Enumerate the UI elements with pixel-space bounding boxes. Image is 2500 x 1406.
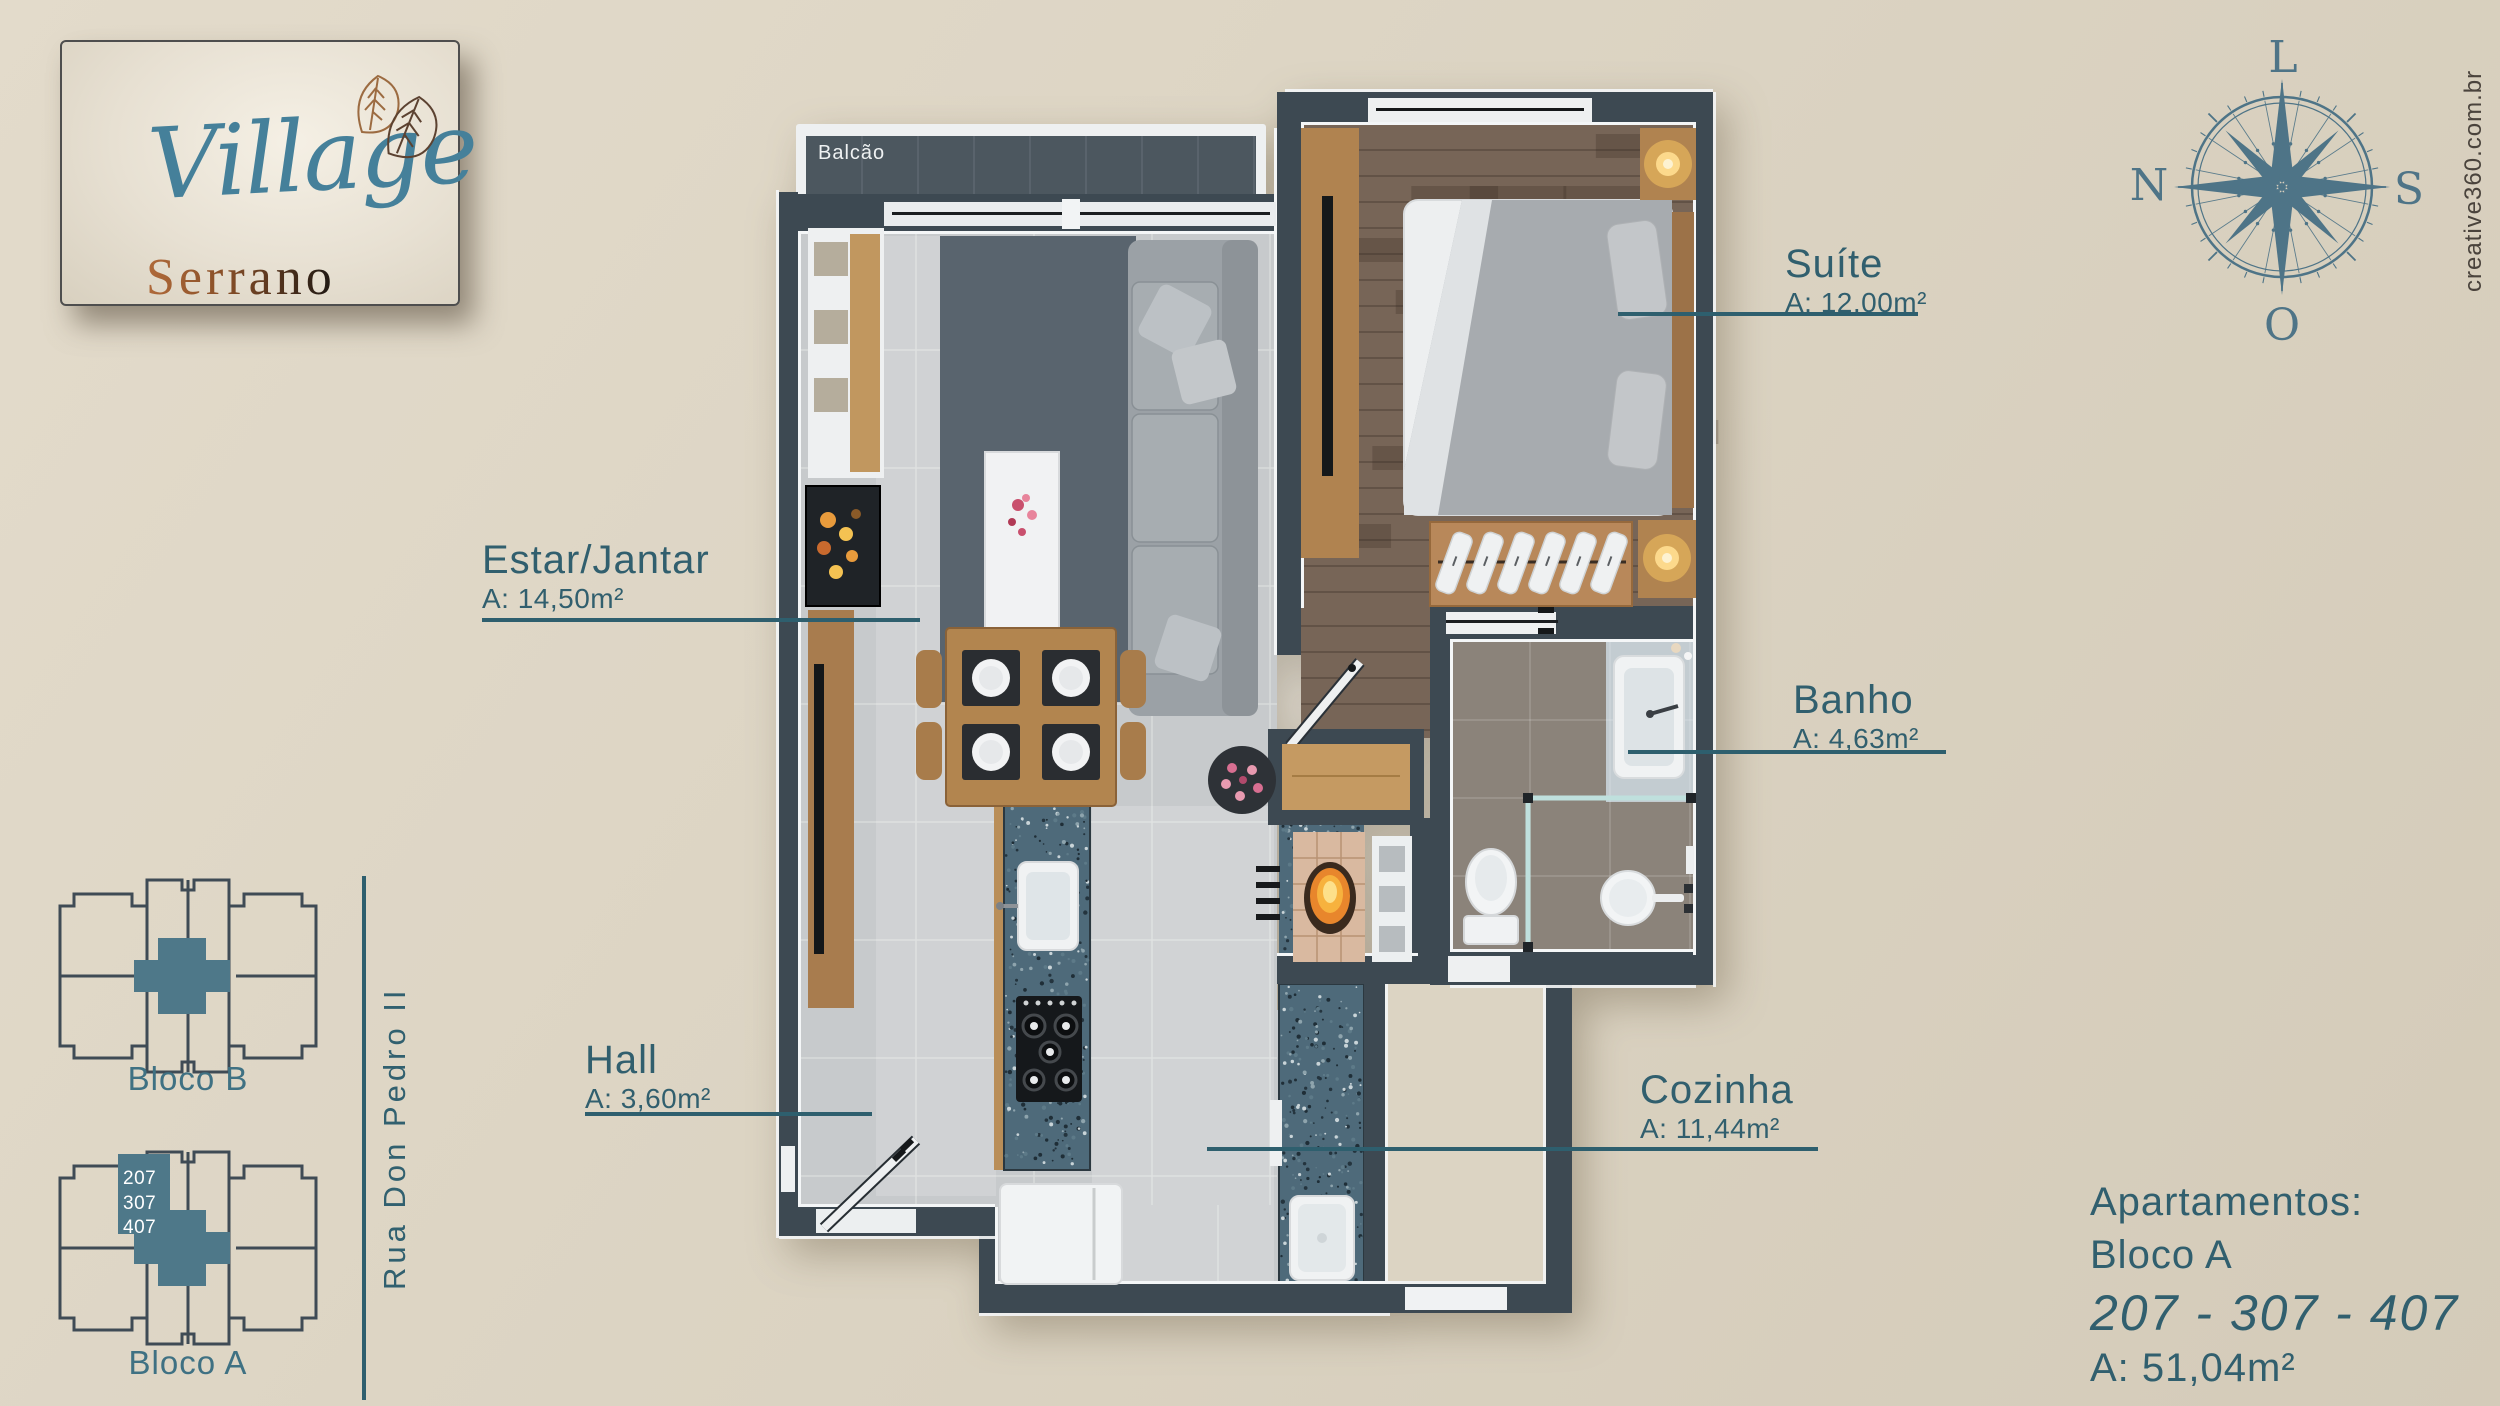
info-area: A: 51,04m²	[2090, 1346, 2459, 1391]
info-block: Bloco A	[2090, 1233, 2459, 1278]
room-area: A: 3,60m²	[585, 1083, 711, 1115]
compass-rose-icon	[2172, 77, 2392, 297]
bath-service-door	[1448, 956, 1510, 982]
room-area: A: 4,63m²	[1793, 723, 1919, 755]
info-title: Apartamentos:	[2090, 1180, 2459, 1225]
room-area: A: 11,44m²	[1640, 1113, 1794, 1145]
tv	[814, 664, 824, 954]
key-plan-bloco-b	[52, 876, 324, 1076]
service-entry-door	[1405, 1287, 1507, 1310]
headboard	[1672, 212, 1694, 508]
room-area: A: 12,00m²	[1785, 287, 1927, 319]
fridge	[1000, 1184, 1122, 1284]
key-plan-bloco-a	[52, 1148, 324, 1348]
chair	[1120, 722, 1146, 780]
room-label-kitchen: Cozinha A: 11,44m²	[1640, 1068, 1794, 1145]
logo-card: Village Serrano	[60, 40, 460, 306]
credit-watermark: creative360.com.br	[2452, 26, 2496, 336]
room-title: Suíte	[1785, 242, 1927, 287]
room-label-living: Estar/Jantar A: 14,50m²	[482, 538, 710, 615]
leaves-icon	[346, 66, 450, 166]
page: Balcão Suíte A: 12,00m² Estar/Jantar A: …	[0, 0, 2500, 1406]
apartment-info: Apartamentos: Bloco A 207 - 307 - 407 A:…	[2090, 1180, 2459, 1391]
room-title: Banho	[1793, 678, 1919, 723]
compass-north-label: N	[2124, 160, 2174, 210]
basin-faucet	[1652, 894, 1684, 902]
info-unit-numbers: 207 - 307 - 407	[2090, 1284, 2459, 1342]
street-name: Rua Don Pedro II	[372, 876, 418, 1400]
unit-numbers: 207 307 407	[123, 1167, 156, 1241]
logo-subname: Serrano	[146, 248, 336, 307]
bloco-a-label: Bloco A	[52, 1344, 324, 1382]
chair	[1120, 650, 1146, 708]
street-line	[362, 876, 366, 1400]
flower-box	[806, 486, 880, 606]
kitchen-leader-line	[1207, 1147, 1818, 1151]
shower-head	[1686, 846, 1694, 874]
room-label-hall: Hall A: 3,60m²	[585, 1038, 711, 1115]
room-title: Hall	[585, 1038, 711, 1083]
room-label-bath: Banho A: 4,63m²	[1793, 678, 1919, 755]
chair	[916, 722, 942, 780]
balcony-label: Balcão	[818, 142, 885, 165]
room-label-suite: Suíte A: 12,00m²	[1785, 242, 1927, 319]
living-leader-line	[482, 618, 920, 622]
room-title: Estar/Jantar	[482, 538, 710, 583]
compass-south-label: S	[2384, 164, 2434, 214]
bloco-b-label: Bloco B	[52, 1060, 324, 1098]
toilet-tank	[1464, 916, 1518, 944]
room-title: Cozinha	[1640, 1068, 1794, 1113]
room-area: A: 14,50m²	[482, 583, 710, 615]
compass-east-label: L	[2258, 32, 2308, 82]
compass-west-label: O	[2257, 300, 2307, 350]
chair	[916, 650, 942, 708]
suite-tv	[1322, 196, 1333, 476]
